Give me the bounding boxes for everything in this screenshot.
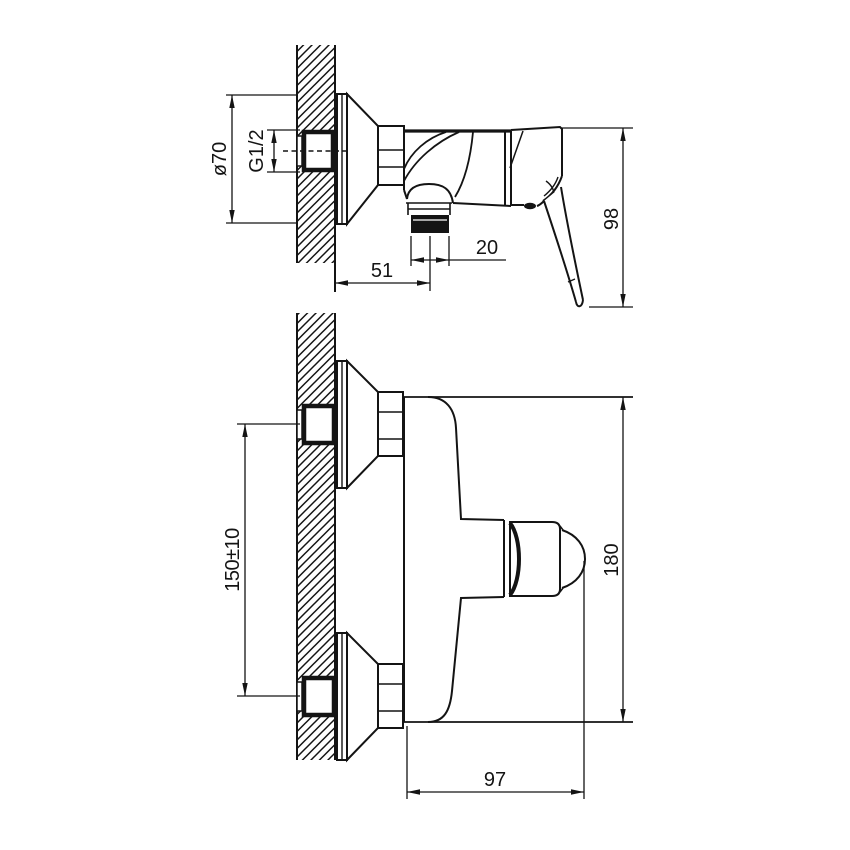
escutcheon-cone-side: [347, 94, 378, 224]
hex-nut-lower: [378, 664, 403, 728]
dim-label-inlet-thread: G1/2: [246, 129, 268, 172]
handle-knob-front: [510, 522, 585, 596]
technical-drawing-canvas: ø70 G1/2 20 51 98: [0, 0, 850, 850]
escutcheon-cone-upper: [347, 361, 378, 488]
dim-label-escutcheon-diameter: ø70: [209, 142, 231, 176]
outlet-threads: [411, 215, 449, 233]
side-view: ø70 G1/2 20 51 98: [209, 45, 633, 307]
dim-label-body-width: 97: [484, 769, 506, 791]
hex-nut-upper: [378, 392, 403, 456]
mixer-body-side: [404, 131, 511, 206]
hex-nut-side: [378, 126, 404, 185]
knob-dome: [562, 530, 585, 588]
inlet-square-upper: [304, 406, 334, 443]
outlet-collar: [406, 203, 452, 215]
outlet-side: [406, 203, 452, 233]
dim-label-inlet-spacing: 150±10: [222, 528, 244, 592]
shower-mixer-technical-drawing: ø70 G1/2 20 51 98: [0, 0, 850, 850]
escutcheon-side: [337, 94, 404, 224]
dim-label-outlet-width: 20: [476, 237, 498, 259]
dim-label-overall-height: 180: [601, 543, 623, 576]
inlet-square-lower: [304, 678, 334, 715]
handle-cap: [511, 127, 562, 176]
dim-label-wall-to-outlet: 51: [371, 260, 393, 282]
body-clip: [524, 203, 536, 209]
dim-label-height-98: 98: [601, 208, 623, 230]
mixer-body-front: [404, 397, 504, 722]
front-view: 150±10 180 97: [222, 313, 633, 799]
escutcheon-cone-lower: [347, 633, 378, 760]
handle-side: [510, 127, 583, 306]
ext-lines-inlet-spacing: [237, 424, 300, 696]
